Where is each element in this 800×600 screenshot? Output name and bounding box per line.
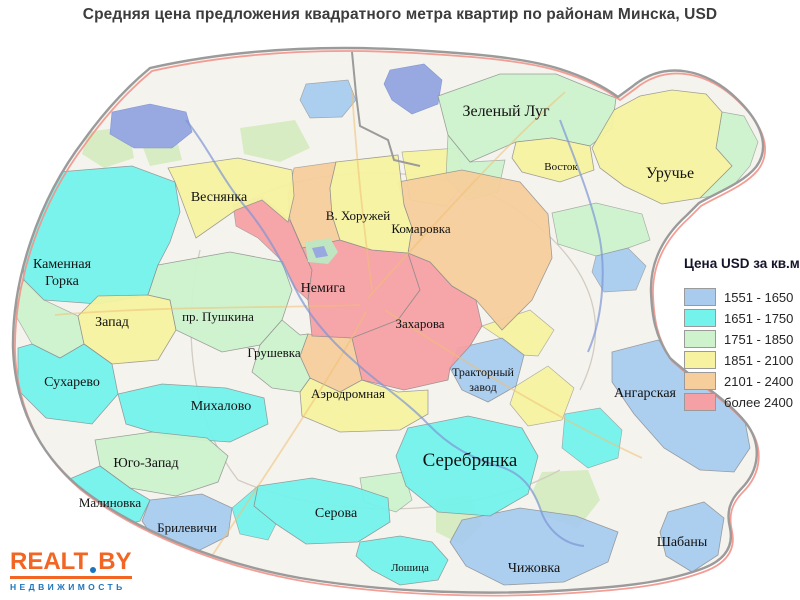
district-label: завод xyxy=(469,380,496,394)
logo-brand-left: REALT xyxy=(10,550,88,574)
logo-dot-icon xyxy=(90,567,96,573)
district-label: Грушевка xyxy=(247,345,301,360)
minsk-districts-map: КаменнаяГоркаЗападпр. ПушкинаСухаревоМих… xyxy=(0,0,800,600)
legend-item-label: 1751 - 1850 xyxy=(724,332,793,347)
legend-item-label: 2101 - 2400 xyxy=(724,374,793,389)
district-label: Аэродромная xyxy=(311,386,385,401)
price-legend: Цена USD за кв.м. 1551 - 16501651 - 1750… xyxy=(684,256,800,414)
logo-brand-right: BY xyxy=(98,550,131,574)
logo-tagline: НЕДВИЖИМОСТЬ xyxy=(10,582,132,592)
district-label: Каменная xyxy=(33,257,92,272)
district-label: Тракторный xyxy=(452,365,514,379)
district-label: Юго-Запад xyxy=(113,456,178,471)
district-label: Малиновка xyxy=(79,495,142,510)
district-label: Ангарская xyxy=(614,386,677,401)
district-label: Михалово xyxy=(191,399,252,414)
legend-swatch-icon xyxy=(684,351,716,369)
district-label: Восток xyxy=(544,161,578,173)
district-label: Запад xyxy=(95,315,129,330)
legend-swatch-icon xyxy=(684,393,716,411)
page-title: Средняя цена предложения квадратного мет… xyxy=(0,6,800,24)
legend-item: 1751 - 1850 xyxy=(684,330,800,348)
water-shape xyxy=(110,104,192,148)
legend-item: 1651 - 1750 xyxy=(684,309,800,327)
district-label: Лошица xyxy=(391,562,429,574)
legend-swatch-icon xyxy=(684,288,716,306)
district-label: Уручье xyxy=(646,165,694,182)
legend-item-label: 1851 - 2100 xyxy=(724,353,793,368)
district-label: Захарова xyxy=(395,316,444,331)
legend-item: более 2400 xyxy=(684,393,800,411)
price-map-infographic: КаменнаяГоркаЗападпр. ПушкинаСухаревоМих… xyxy=(0,0,800,600)
district-label: Серебрянка xyxy=(423,450,518,471)
legend-item-label: 1551 - 1650 xyxy=(724,290,793,305)
district-label: Комаровка xyxy=(391,221,450,236)
district-label: Чижовка xyxy=(508,561,561,576)
district-label: Серова xyxy=(315,506,358,521)
legend-items: 1551 - 16501651 - 17501751 - 18501851 - … xyxy=(684,288,800,411)
legend-swatch-icon xyxy=(684,372,716,390)
legend-swatch-icon xyxy=(684,309,716,327)
district-label: Веснянка xyxy=(191,190,248,205)
logo-brand: REALT BY xyxy=(10,550,132,579)
legend-item-label: более 2400 xyxy=(724,395,793,410)
district-label: Немига xyxy=(301,281,346,296)
district-label: Брилевичи xyxy=(157,520,217,535)
district-label: В. Хоружей xyxy=(326,208,390,223)
district-label: Горка xyxy=(45,274,79,289)
district-shape xyxy=(330,155,412,253)
district-label: Сухарево xyxy=(44,375,100,390)
legend-item-label: 1651 - 1750 xyxy=(724,311,793,326)
legend-title: Цена USD за кв.м. xyxy=(684,256,800,271)
district-label: Зеленый Луг xyxy=(462,103,550,120)
district-label: Шабаны xyxy=(657,535,708,550)
legend-item: 2101 - 2400 xyxy=(684,372,800,390)
legend-item: 1851 - 2100 xyxy=(684,351,800,369)
district-label: пр. Пушкина xyxy=(182,309,254,324)
legend-item: 1551 - 1650 xyxy=(684,288,800,306)
legend-swatch-icon xyxy=(684,330,716,348)
realt-by-logo: REALT BY НЕДВИЖИМОСТЬ xyxy=(10,550,132,592)
